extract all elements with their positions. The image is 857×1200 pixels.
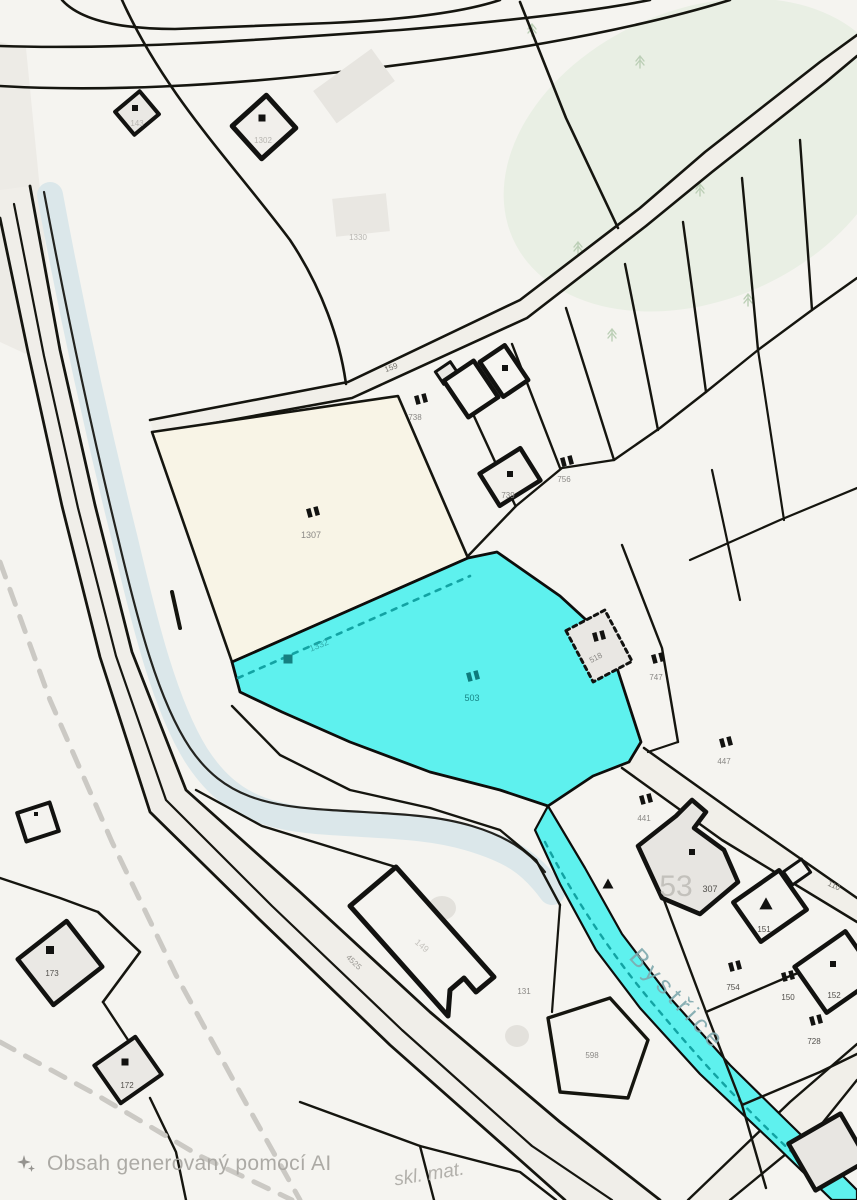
parcel-number-label: 441 <box>637 814 651 823</box>
parcel-number-label: 1307 <box>301 530 321 540</box>
building-point <box>502 365 508 371</box>
building-point <box>507 471 513 477</box>
building-point <box>122 1059 129 1066</box>
parcel-number-label: 756 <box>557 475 571 484</box>
building-point <box>34 812 38 816</box>
building-point <box>46 946 54 954</box>
parcel-number-label: 307 <box>702 884 717 894</box>
survey-mark-teal <box>284 655 293 664</box>
parcel-number-label: 728 <box>807 1037 821 1046</box>
parcel-number-label: 150 <box>781 993 795 1002</box>
faded-blob-2 <box>505 1025 529 1047</box>
parcel-number-label: 173 <box>45 969 59 978</box>
building-point <box>132 105 138 111</box>
parcel-number-label: 747 <box>649 673 663 682</box>
parcel-number-label: 1330 <box>349 233 367 242</box>
parcel-number-label: 738 <box>408 413 422 422</box>
building-point <box>689 849 695 855</box>
parcel-number-label: 151 <box>757 925 771 934</box>
building-point <box>830 961 836 967</box>
faded-structure-2 <box>332 193 390 236</box>
parcel-number-label: 152 <box>827 991 841 1000</box>
highlight-parcel-number: 503 <box>464 693 479 703</box>
house-number-label: 53 <box>659 870 692 903</box>
parcel-number-label: 754 <box>726 983 740 992</box>
parcel-number-label: 739 <box>501 491 515 500</box>
building-number-label: 1302 <box>254 136 272 145</box>
cadastral-map-canvas[interactable]: 1330143130273951853307151173172149152738… <box>0 0 857 1200</box>
parcel-number-label: 131 <box>517 987 531 996</box>
parcel-number-label: 598 <box>585 1051 599 1060</box>
parcel-number-label: 172 <box>120 1081 134 1090</box>
building-number-label: 143 <box>130 119 144 128</box>
parcel-number-label: 447 <box>717 757 731 766</box>
cadastral-map-view: 1330143130273951853307151173172149152738… <box>0 0 857 1200</box>
building-point <box>259 115 266 122</box>
